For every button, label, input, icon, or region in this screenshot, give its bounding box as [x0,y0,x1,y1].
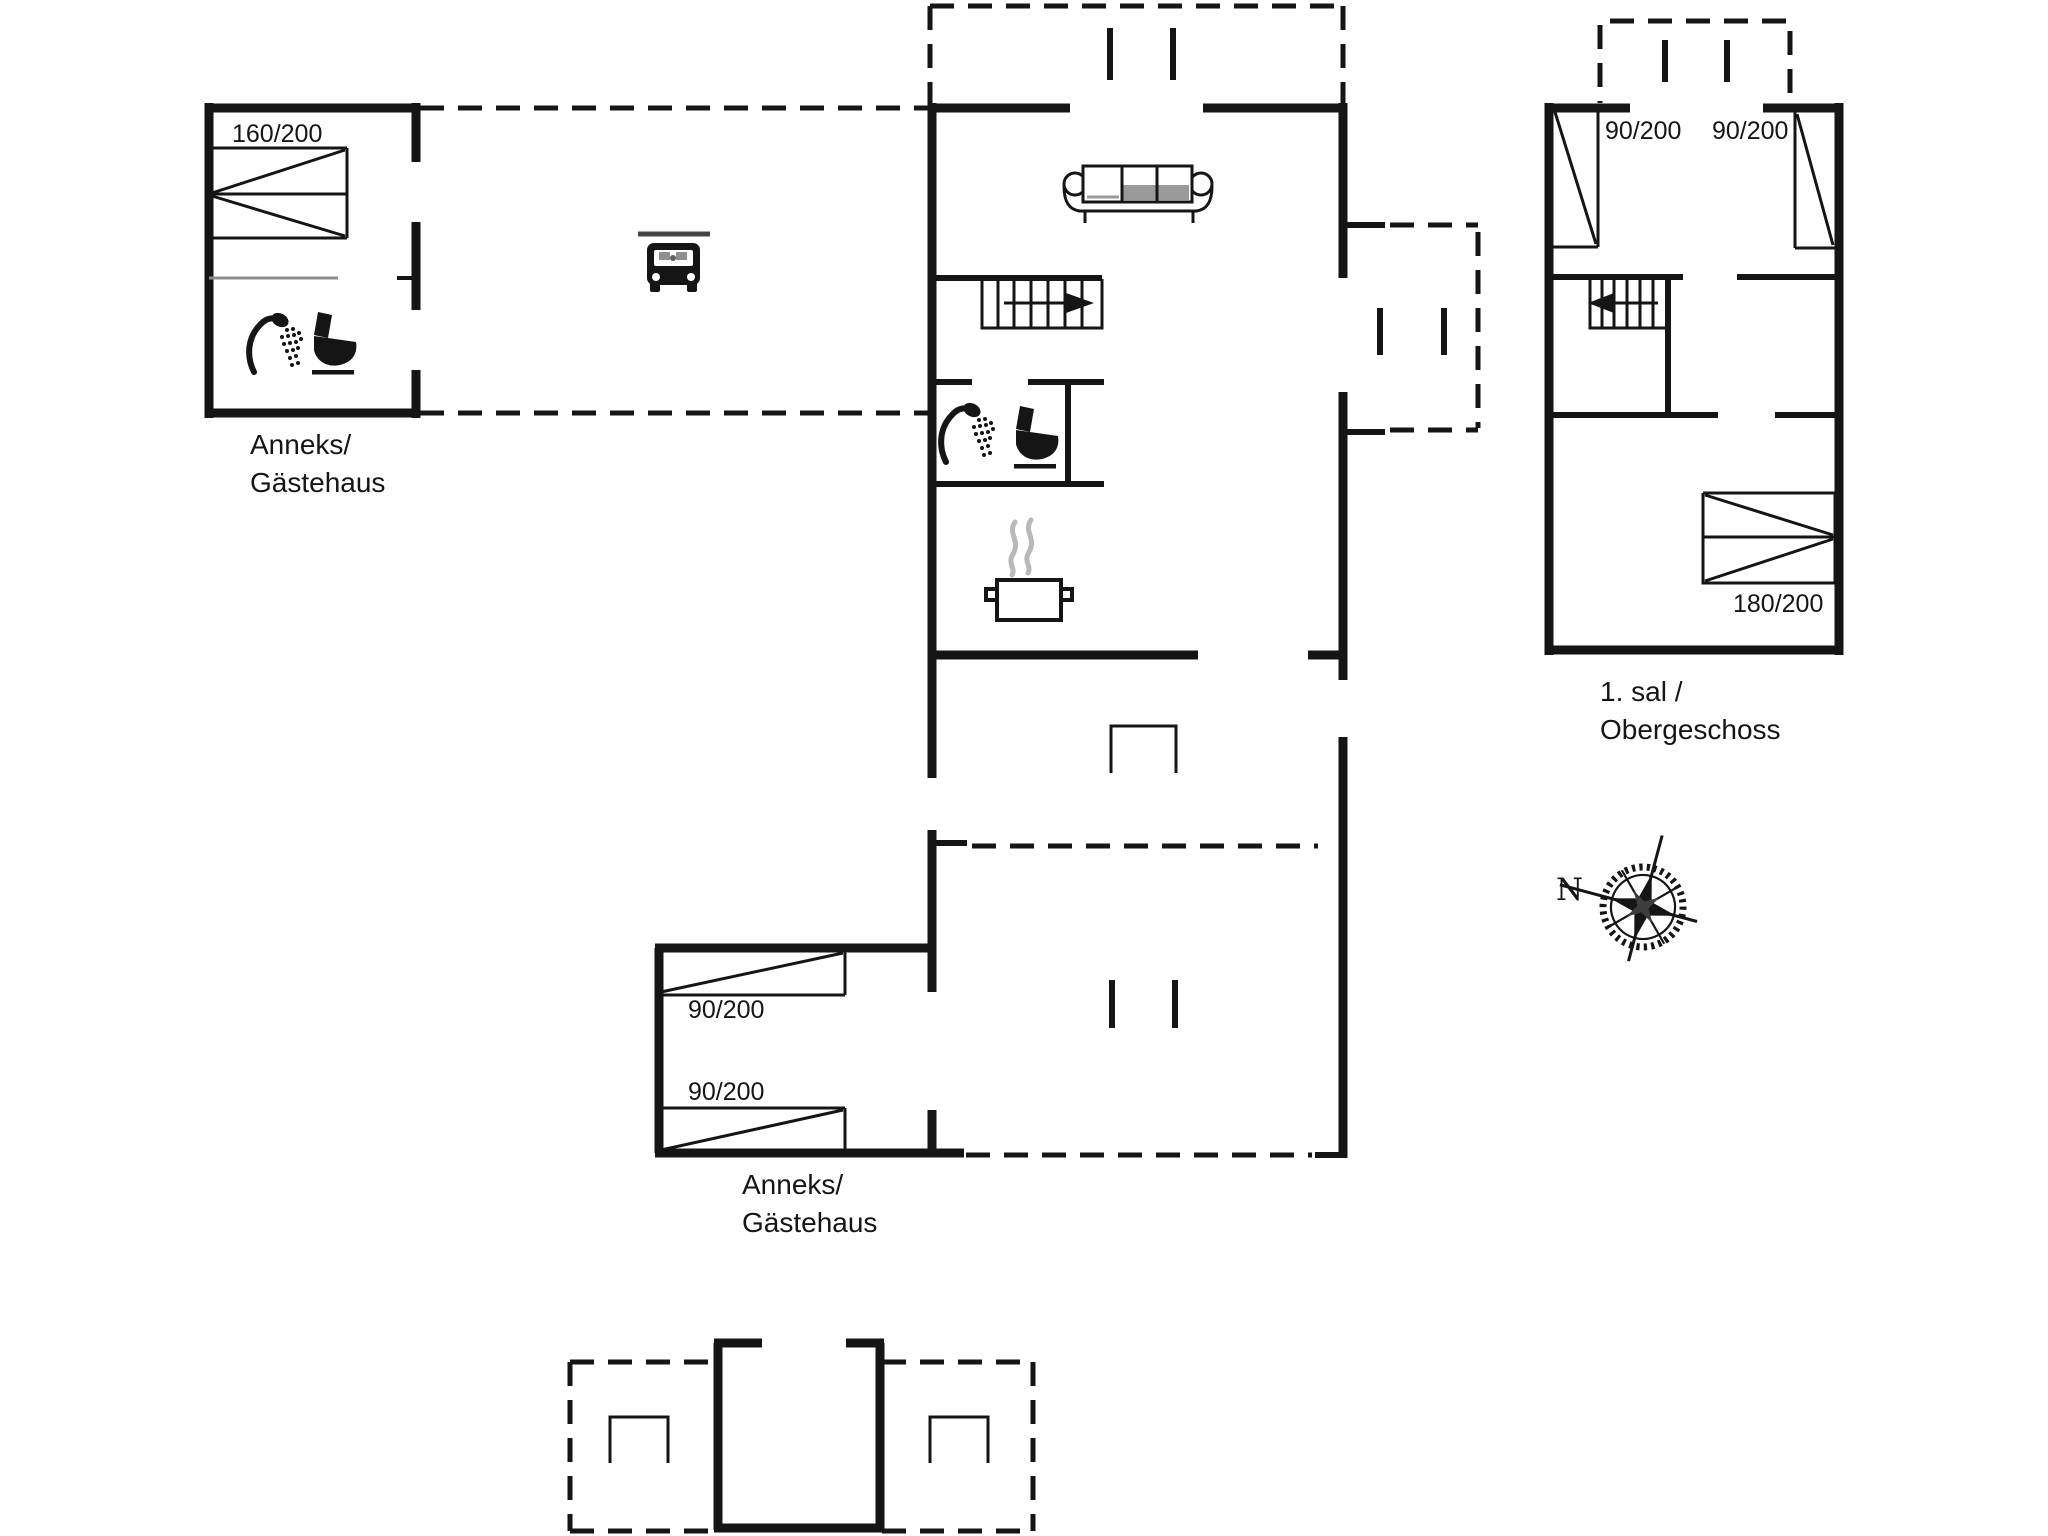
bed-size-label: 90/200 [688,1078,764,1106]
car-icon [647,243,700,292]
terrace-top-dashed [930,6,1343,103]
cooking-pot-icon [986,520,1072,620]
outbuilding [570,1343,1033,1531]
compass-rose-icon: N [1545,813,1716,975]
single-bed-icon [659,950,845,995]
shower-icon [249,310,303,372]
annex-label-line1: Anneks/ [742,1169,843,1200]
upper-floor: 90/200 90/200 180/200 1. sal / Obergesch… [1545,21,1843,745]
bed-size-label: 90/200 [1605,117,1681,145]
annex-label-line1: Anneks/ [250,429,351,460]
bed-size-label: 180/200 [1733,590,1823,618]
upper-floor-outer-walls [1545,103,1843,655]
single-bed-icon [1795,112,1835,248]
single-bed-icon [1553,110,1598,247]
toilet-icon [1014,406,1058,469]
door-opening-icon [610,1417,988,1463]
upper-floor-label-line1: 1. sal / [1600,676,1683,707]
upper-floor-label-line2: Obergeschoss [1600,714,1781,745]
compass-north-label: N [1556,872,1583,908]
bed-size-label: 90/200 [688,996,764,1024]
shower-icon [941,400,995,462]
terrace-right-dashed [1390,225,1478,430]
bed-size-label: 90/200 [1712,117,1788,145]
balcony-dashed [1600,21,1790,103]
main-house [928,6,1478,1158]
annex-top-left: 160/200 Anneks/ Gästehaus [205,103,420,498]
bed-size-label: 160/200 [232,120,322,148]
carport-walkway [420,108,928,413]
wall-stubs [930,225,1385,1155]
annex-bottom: 90/200 90/200 Anneks/ Gästehaus [655,948,964,1238]
single-bed-icon [659,1108,845,1151]
double-bed-icon [209,148,347,238]
outbuilding-solid-walls [714,1343,884,1530]
double-bed-icon [1703,493,1835,583]
toilet-icon [312,312,356,375]
stairs-icon [1588,279,1668,328]
outbuilding-dashed-outline [570,1362,1033,1531]
stairs-icon [932,278,1102,328]
upper-floor-interior-walls [1553,277,1838,415]
balcony-door-ticks [1665,40,1727,82]
door-opening-icon [1111,726,1176,773]
sofa-icon [1064,166,1212,223]
floor-plan-canvas: 160/200 Anneks/ Gästehaus [0,0,2048,1536]
annex-label-line2: Gästehaus [742,1207,877,1238]
annex-bottom-walls [655,948,964,1153]
annex-label-line2: Gästehaus [250,467,385,498]
main-house-walls [928,103,1343,1158]
partition-dashed-lines [966,846,1318,1155]
stairs-arrow [1066,293,1094,313]
